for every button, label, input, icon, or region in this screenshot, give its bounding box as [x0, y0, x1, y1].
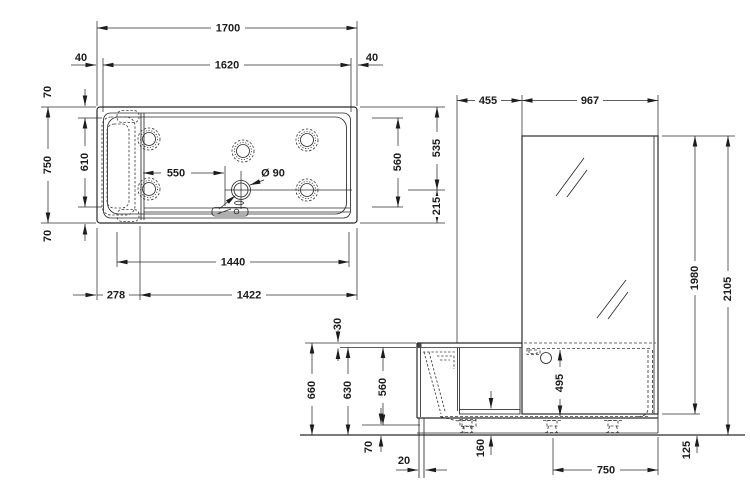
- adjustable-feet: [458, 421, 622, 433]
- elevation-view: 455 967 660 630 560 30 70: [300, 95, 745, 479]
- plan-dimensions-bottom: 1440 278 1422: [73, 226, 357, 302]
- dim-plan-overall-width: 1700: [216, 23, 240, 35]
- seat-elevation-hidden-contour: [423, 352, 455, 414]
- dim-elev-glass-height: 1980: [689, 266, 701, 290]
- dim-elev-feet-spacing: 750: [597, 465, 615, 477]
- dim-elev-threshold-height: 160: [475, 439, 487, 457]
- elevation-dimensions-door: 160 20: [396, 391, 491, 470]
- dim-elev-rim-height: 30: [332, 318, 344, 330]
- dim-plan-inner-width: 1620: [215, 60, 239, 72]
- dim-elev-glass-clearance: 125: [681, 441, 693, 459]
- dim-plan-drain-diameter: Ø 90: [261, 168, 285, 180]
- dim-elev-base-height: 70: [363, 441, 375, 453]
- tub-hidden-interior: [440, 343, 656, 417]
- dim-plan-rim-left: 40: [75, 52, 87, 64]
- dim-plan-bottom-left: 278: [107, 290, 125, 302]
- waste-trap-hidden: [441, 417, 476, 433]
- technical-drawing-page: 1700 1620 40 40 750 610 70 70: [0, 0, 750, 500]
- elevation-dimensions-right: 1980 2105 125: [662, 136, 735, 459]
- dim-plan-rim-right: 40: [366, 52, 378, 64]
- bathtub-plan-outline: [97, 107, 357, 223]
- plan-dimensions-top: 1700 1620 40 40: [71, 21, 383, 112]
- dim-plan-rim-top: 70: [42, 86, 54, 98]
- dim-plan-bottom-span: 1440: [221, 257, 245, 269]
- dim-plan-seat-to-drain: 550: [167, 168, 185, 180]
- bathtub-technical-drawing: 1700 1620 40 40 750 610 70 70: [0, 0, 750, 500]
- dim-elev-door-height: 560: [377, 378, 389, 396]
- dim-elev-tub-depth: 495: [554, 374, 566, 392]
- overflow-drain: [541, 353, 552, 364]
- dim-elev-glass-width: 967: [581, 95, 599, 107]
- dim-plan-inner-depth: 610: [79, 153, 91, 171]
- plan-dimensions-left: 750 610 70 70: [41, 86, 102, 242]
- dim-elev-tub-height: 660: [306, 381, 318, 399]
- dim-elev-total-height: 2105: [722, 277, 734, 301]
- glass-symbol: [556, 158, 628, 319]
- dim-plan-rim-bottom: 70: [42, 230, 54, 242]
- dim-elev-panel-inset: 20: [398, 455, 410, 467]
- plan-view: 1700 1620 40 40 750 610 70 70: [41, 21, 445, 302]
- dim-elev-inner-height: 630: [342, 381, 354, 399]
- dim-elev-door-width: 455: [479, 95, 497, 107]
- dim-plan-overall-depth: 750: [42, 156, 54, 174]
- dim-plan-bottom-right: 1422: [237, 290, 261, 302]
- dim-plan-right-inner: 560: [392, 153, 404, 171]
- shower-glass-panel: [522, 136, 658, 414]
- elevation-dimensions-bottom: 750: [553, 437, 658, 477]
- bathtub-elevation-outline: [417, 343, 658, 478]
- elevation-dimensions-depth: 495: [554, 350, 566, 416]
- elevation-dimensions-top: 455 967: [457, 95, 658, 344]
- elevation-dimensions-left: 660 630 560 30 70: [305, 318, 420, 453]
- plan-dimensions-right: 560 535 215: [360, 107, 445, 223]
- dim-plan-right-upper: 535: [431, 139, 443, 157]
- dim-plan-right-lower: 215: [431, 197, 443, 215]
